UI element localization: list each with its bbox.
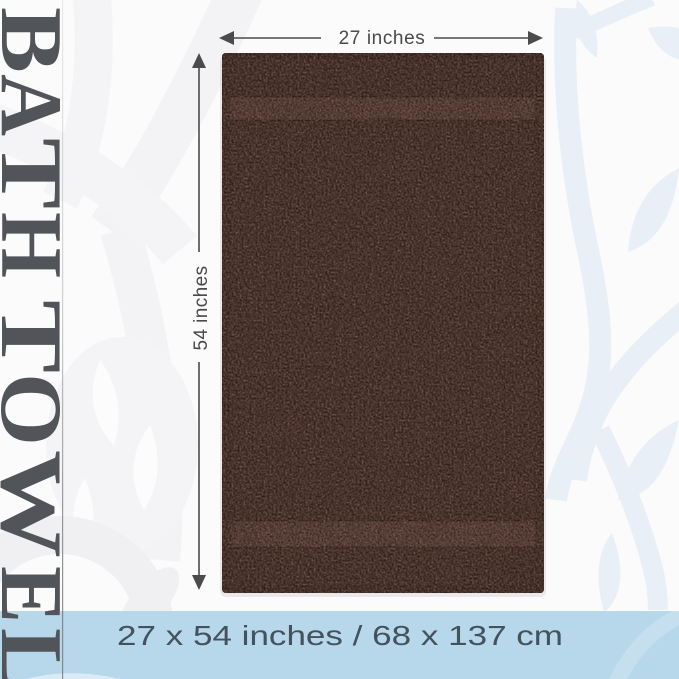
svg-text:E: E	[0, 566, 79, 623]
svg-text:B: B	[0, 7, 79, 73]
svg-text:T: T	[0, 138, 79, 209]
svg-text:W: W	[0, 450, 79, 558]
svg-text:27 x 54 inches / 68 x 137 cm: 27 x 54 inches / 68 x 137 cm	[117, 620, 563, 651]
svg-text:54 inches: 54 inches	[191, 266, 212, 351]
svg-text:A: A	[0, 74, 79, 136]
svg-text:T: T	[0, 300, 79, 373]
svg-text:L: L	[0, 628, 79, 679]
svg-text:O: O	[0, 373, 79, 446]
svg-text:H: H	[0, 212, 79, 278]
svg-text:27 inches: 27 inches	[339, 28, 426, 49]
